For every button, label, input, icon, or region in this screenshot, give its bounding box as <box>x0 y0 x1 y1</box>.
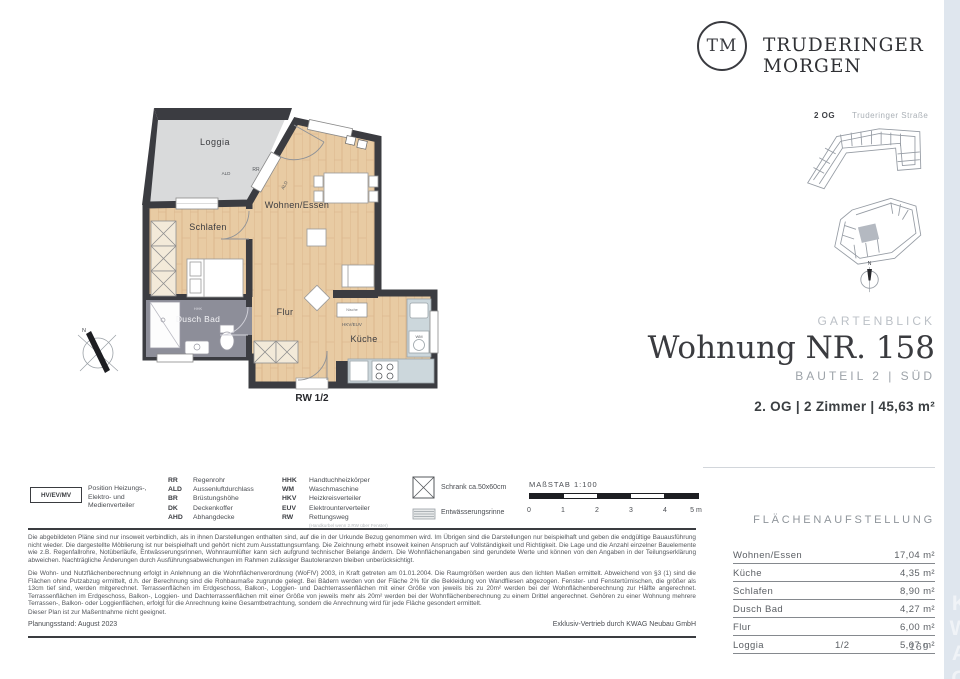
brand-logo-icon: TM <box>697 21 747 71</box>
room-label: Wohnen/Essen <box>733 550 835 561</box>
kitchen-wall <box>333 290 378 298</box>
siteplan-building-outlines <box>808 129 921 264</box>
abbr-label: Aussenluftdurchlass <box>193 485 254 494</box>
washbasin <box>185 341 209 354</box>
bedroom-wardrobe <box>151 221 176 296</box>
divider-line <box>28 636 696 638</box>
abbr-code: BR <box>168 494 193 503</box>
abbr-label: Brüstungshöhe <box>193 494 254 503</box>
abbr-label: Elektrounterverteiler <box>309 504 388 513</box>
share-value: 1/2 <box>835 640 880 651</box>
kitchen-sink <box>410 303 428 318</box>
scale-label: MAßSTAB 1:100 <box>529 480 598 489</box>
living-room-label: Wohnen/Essen <box>265 200 329 210</box>
kitchen-cabinet <box>350 361 368 381</box>
bath-door-gap <box>245 307 252 335</box>
watermark: KWAG <box>947 592 960 679</box>
floor-plan: WM Nische HKV/EUV <box>30 95 450 415</box>
legend-abbreviations-2: HHKHandtuchheizkörper WMWaschmaschine HK… <box>282 476 388 530</box>
table-row: Küche 4,35 m² <box>733 564 935 582</box>
armchair <box>307 229 326 246</box>
niche-label: Nische <box>346 308 358 312</box>
title-block: GARTENBLICK Wohnung NR. 158 BAUTEIL 2 | … <box>615 314 935 414</box>
hkv-euv-label: HKV/EUV <box>342 322 362 327</box>
cooktop <box>372 361 398 381</box>
scale-tick: 0 <box>527 507 531 514</box>
planning-status: Planungsstand: August 2023 <box>28 621 117 628</box>
loggia-label: Loggia <box>200 137 230 147</box>
table-row: Flur 6,00 m² <box>733 618 935 636</box>
project-name: GARTENBLICK <box>615 314 935 328</box>
scale-tick: 2 <box>595 507 599 514</box>
kitchen-label: Küche <box>350 334 377 344</box>
document-page: TM TRUDERINGER MORGEN 2 OG Truderinger S… <box>0 0 944 679</box>
hall-label: Flur <box>277 307 294 317</box>
sofa <box>342 265 374 287</box>
disclaimer-paragraph-1: Die abgebildeten Pläne sind nur insoweit… <box>28 534 696 564</box>
entrance-stub-wall <box>336 361 348 383</box>
room-label: Küche <box>733 568 835 579</box>
cabinet-symbol-label: Schrank ca.50x60cm <box>441 484 506 491</box>
share-value <box>835 622 880 633</box>
divider-line <box>28 528 696 530</box>
abbr-label: Handtuchheizkörper <box>309 476 388 485</box>
abbr-code: HKV <box>282 494 309 503</box>
disclaimer-paragraph-2: Die Wohn- und Nutzflächenberechnung erfo… <box>28 570 696 608</box>
legend-abbreviations-1: RRRegenrohr ALDAussenluftdurchlass BRBrü… <box>168 476 254 522</box>
drainage-symbol-icon <box>412 507 436 525</box>
rr-label: RR <box>252 167 260 173</box>
bed <box>187 259 243 297</box>
brand-name: TRUDERINGER MORGEN <box>763 35 944 77</box>
plan-compass-label: N <box>82 328 86 334</box>
cabinet-symbol-icon <box>412 476 436 505</box>
siteplan-compass-icon: N <box>861 261 878 292</box>
abbr-label: Heizkreisverteiler <box>309 494 388 503</box>
loggia-top-wall <box>154 108 292 120</box>
area-value: 17,04 m² <box>880 550 935 561</box>
share-value <box>835 550 880 561</box>
siteplan-floor-label: 2 OG <box>814 111 835 120</box>
room-label: Schlafen <box>733 586 835 597</box>
hall-wardrobe <box>254 341 298 363</box>
table-row: Dusch Bad 4,27 m² <box>733 600 935 618</box>
abbr-code: ALD <box>168 485 193 494</box>
building-part-label: BAUTEIL 2 | SÜD <box>615 369 935 383</box>
apartment-details: 2. OG | 2 Zimmer | 45,63 m² <box>615 399 935 414</box>
table-row: Loggia 1/2 5,07 m² <box>733 636 935 654</box>
area-value: 8,90 m² <box>880 586 935 597</box>
abbr-code: EUV <box>282 504 309 513</box>
siteplan-map: N <box>798 122 943 302</box>
table-row: Schlafen 8,90 m² <box>733 582 935 600</box>
siteplan-street-label: Truderinger Straße <box>852 111 928 120</box>
abbr-code: WM <box>282 485 309 494</box>
share-value <box>835 604 880 615</box>
wm-label: WM <box>415 334 422 339</box>
scale-bar <box>529 493 699 499</box>
divider-line <box>703 467 935 468</box>
siteplan-unit-highlight <box>858 224 879 243</box>
page-edge-strip: KWAG <box>944 0 960 679</box>
ald-label: ALD <box>222 171 232 176</box>
area-value: 4,35 m² <box>880 568 935 579</box>
abbr-label: Regenrohr <box>193 476 254 485</box>
dining-set <box>314 173 378 203</box>
abbr-code: HHK <box>282 476 309 485</box>
siteplan-compass-label: N <box>868 261 872 267</box>
scale-tick: 5 m <box>690 507 702 514</box>
area-table: Wohnen/Essen 17,04 m² Küche 4,35 m² Schl… <box>733 546 935 654</box>
plan-compass-icon: N <box>78 328 118 373</box>
scale-tick: 4 <box>663 507 667 514</box>
share-value <box>835 568 880 579</box>
room-label: Flur <box>733 622 835 633</box>
bathroom-label: Dusch Bad <box>176 314 220 324</box>
area-value: 6,00 m² <box>880 622 935 633</box>
disclaimer-paragraph-3: Dieser Plan ist zur Maßentnahme nicht ge… <box>28 609 696 617</box>
abbr-code: RR <box>168 476 193 485</box>
bedroom-label: Schlafen <box>189 222 226 232</box>
room-label: Dusch Bad <box>733 604 835 615</box>
page-title: Wohnung NR. 158 <box>615 330 935 366</box>
abbr-code: RW <box>282 513 309 522</box>
abbr-code: DK <box>168 504 193 513</box>
table-row: Wohnen/Essen 17,04 m² <box>733 546 935 564</box>
distribution-box-symbol: HV/EV/MV <box>30 487 82 503</box>
area-table-heading: FLÄCHENAUFSTELLUNG <box>753 514 935 526</box>
scale-tick: 3 <box>629 507 633 514</box>
hhk-label: HHK <box>194 306 203 311</box>
page-number: 169 <box>909 641 930 653</box>
drainage-symbol-label: Entwässerungsrinne <box>441 509 504 516</box>
area-value: 4,27 m² <box>880 604 935 615</box>
room-label: Loggia <box>733 640 835 651</box>
escape-route-label: RW 1/2 <box>295 393 329 404</box>
share-value <box>835 586 880 597</box>
abbr-label: Deckenkoffer <box>193 504 254 513</box>
abbr-label: Waschmaschine <box>309 485 388 494</box>
distributor-note: Exklusiv-Vertrieb durch KWAG Neubau GmbH <box>430 621 696 628</box>
abbr-label: Abhangdecke <box>193 513 254 522</box>
abbr-code: AHD <box>168 513 193 522</box>
scale-tick: 1 <box>561 507 565 514</box>
distribution-box-label: Position Heizungs-, Elektro- und Medienv… <box>88 485 170 511</box>
